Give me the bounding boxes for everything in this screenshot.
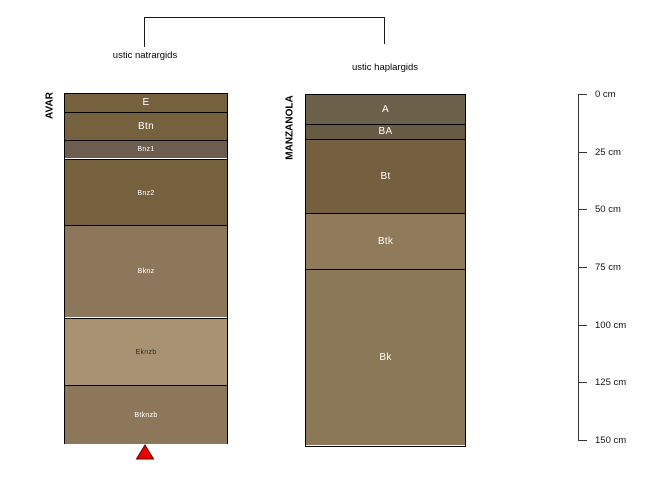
depth-tick [578, 267, 587, 268]
depth-tick-label: 100 cm [595, 320, 626, 331]
horizon-eknzb: Eknzb [65, 318, 227, 385]
horizon-a: A [306, 95, 465, 124]
bracket-top-line [144, 17, 384, 18]
soil-profile-manzanola: ABABtBtkBk [305, 94, 466, 447]
depth-tick [578, 94, 587, 95]
depth-tick [578, 382, 587, 383]
depth-tick [578, 209, 587, 210]
horizon-label: Bt [380, 172, 390, 182]
depth-tick-label: 150 cm [595, 435, 626, 446]
depth-tick-label: 75 cm [595, 262, 621, 273]
horizon-label: Bnz2 [137, 190, 154, 197]
horizon-btn: Btn [65, 112, 227, 140]
horizon-btknzb: Btknzb [65, 385, 227, 444]
horizon-label: BA [379, 127, 393, 137]
soil-profile-avar: EBtnBnz1Bnz2BknzEknzbBtknzb [64, 93, 228, 444]
horizon-label: Bknz [138, 268, 155, 275]
horizon-label: Btknzb [134, 412, 157, 419]
depth-tick [578, 152, 587, 153]
horizon-bt: Bt [306, 139, 465, 213]
depth-tick-label: 25 cm [595, 147, 621, 158]
horizon-label: Bnz1 [137, 146, 154, 153]
profile-name-avar: AVAR [45, 66, 56, 146]
depth-tick [578, 325, 587, 326]
horizon-btk: Btk [306, 213, 465, 270]
horizon-label: Eknzb [136, 349, 157, 356]
horizon-label: Btn [138, 122, 154, 132]
horizon-label: Bk [379, 353, 391, 363]
depth-tick [578, 440, 587, 441]
horizon-bnz1: Bnz1 [65, 140, 227, 158]
depth-tick-label: 125 cm [595, 377, 626, 388]
bracket-right-stem [384, 17, 385, 44]
horizon-label: A [382, 105, 389, 115]
taxon-label-natrargids: ustic natrargids [65, 50, 225, 61]
profile-name-manzanola: MANZANOLA [285, 83, 296, 173]
horizon-e: E [65, 94, 227, 112]
depth-tick-label: 50 cm [595, 204, 621, 215]
horizon-label: Btk [378, 237, 393, 247]
bracket-left-stem [144, 17, 145, 47]
horizon-bnz2: Bnz2 [65, 159, 227, 226]
horizon-label: E [143, 98, 150, 108]
soil-profile-figure: ustic natrargids ustic haplargids AVAR M… [0, 0, 650, 500]
depth-tick-label: 0 cm [595, 89, 616, 100]
horizon-ba: BA [306, 124, 465, 139]
horizon-bknz: Bknz [65, 225, 227, 317]
taxon-label-haplargids: ustic haplargids [305, 62, 465, 73]
horizon-bk: Bk [306, 269, 465, 445]
sample-marker-triangle-icon [135, 444, 155, 460]
